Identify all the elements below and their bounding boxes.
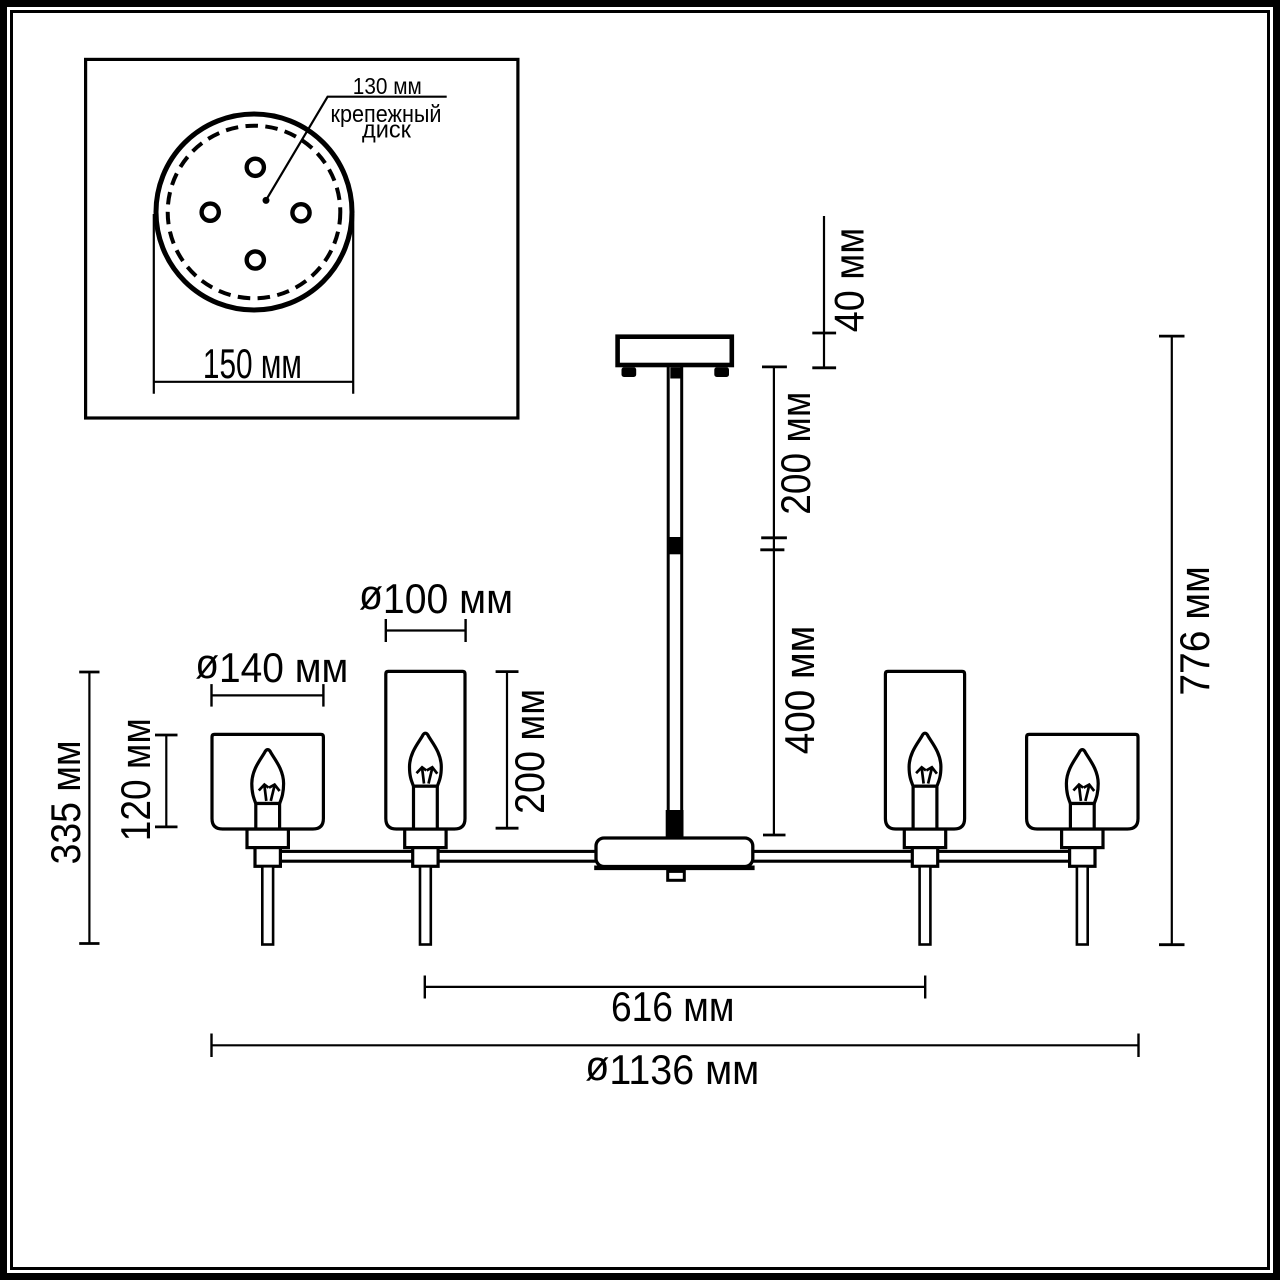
svg-text:40 мм: 40 мм [826,228,873,333]
svg-text:200 мм: 200 мм [772,392,819,515]
svg-text:ø140 мм: ø140 мм [195,640,348,691]
svg-text:ø1136 мм: ø1136 мм [585,1042,759,1093]
svg-text:200 мм: 200 мм [506,689,553,814]
svg-text:776 мм: 776 мм [1171,566,1218,696]
svg-text:335 мм: 335 мм [42,740,89,864]
svg-text:диск: диск [362,117,411,144]
svg-text:150 мм: 150 мм [203,340,302,387]
svg-text:616 мм: 616 мм [611,983,735,1030]
svg-text:400 мм: 400 мм [776,626,823,755]
svg-text:130 мм: 130 мм [353,73,422,99]
svg-text:ø100 мм: ø100 мм [359,571,513,622]
svg-text:120 мм: 120 мм [112,718,159,841]
